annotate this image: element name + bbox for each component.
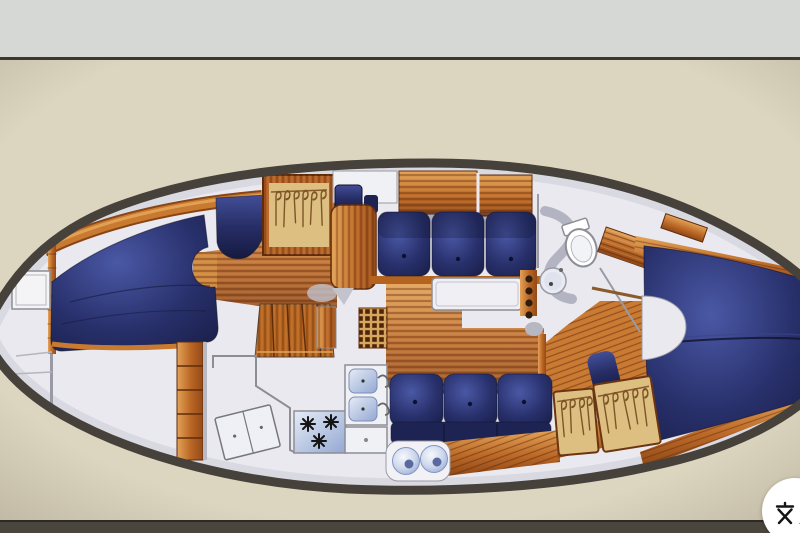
- speaker-box: [386, 441, 450, 481]
- photographed-page: A: [0, 0, 800, 533]
- sailboat-floorplan: [0, 163, 800, 490]
- settee-starboard: [370, 212, 542, 284]
- forward-hanging-locker: [263, 175, 335, 255]
- translate-icon: A: [762, 478, 800, 533]
- sole-grate: [359, 308, 387, 348]
- translate-button[interactable]: A: [762, 478, 800, 533]
- aft-hanging-locker: [553, 388, 598, 455]
- fold-out-table: [331, 205, 376, 289]
- overhead-cabinets: [399, 171, 532, 216]
- page-top-edge: [0, 57, 800, 60]
- bookshelf: [177, 342, 207, 460]
- floorplan-image: [0, 0, 800, 533]
- aft-hanging-locker: [593, 376, 661, 452]
- double-sink: [345, 365, 389, 425]
- wall-strip: [0, 0, 800, 57]
- locker-door: [317, 307, 336, 348]
- saloon-table: [432, 278, 522, 310]
- table-edge-line: [0, 520, 800, 522]
- wash-basin: [540, 268, 566, 294]
- stove: [294, 411, 346, 453]
